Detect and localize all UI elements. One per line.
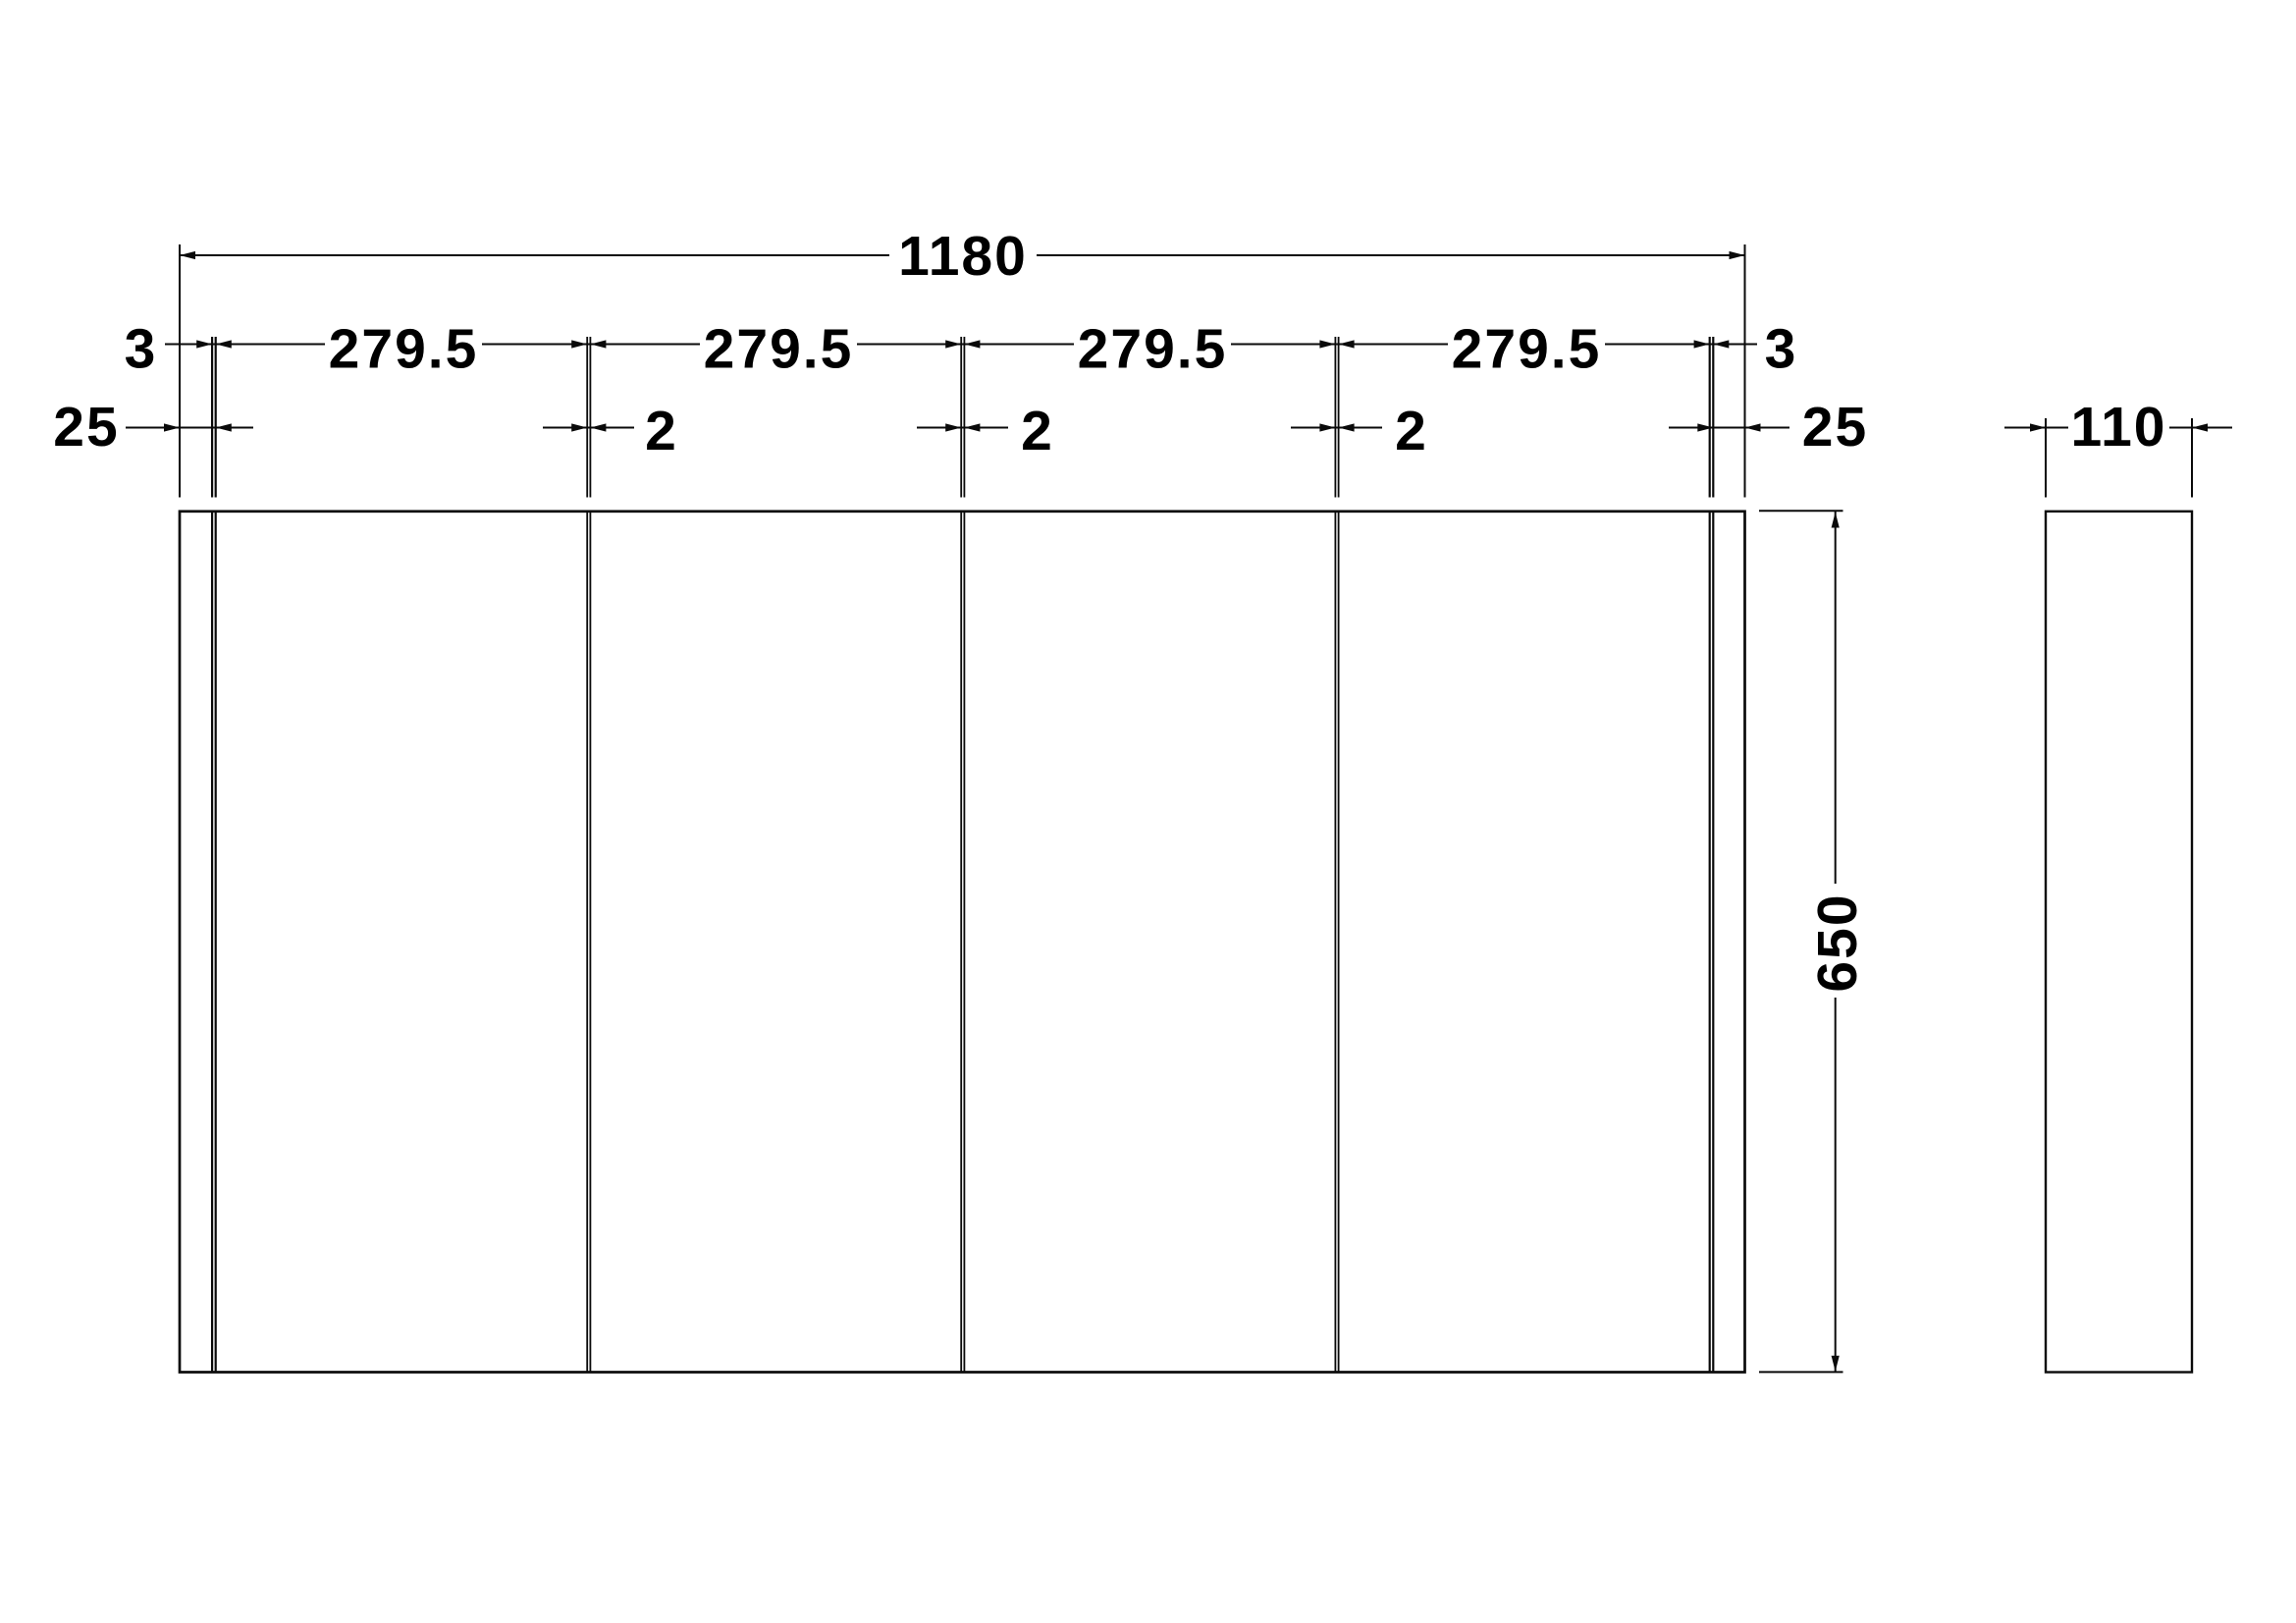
svg-text:25: 25 — [1802, 396, 1868, 459]
svg-text:2: 2 — [645, 400, 678, 462]
svg-text:25: 25 — [53, 396, 119, 459]
svg-text:3: 3 — [1765, 318, 1798, 381]
svg-text:279.5: 279.5 — [1078, 318, 1228, 381]
svg-text:279.5: 279.5 — [1452, 318, 1602, 381]
svg-text:650: 650 — [1806, 893, 1869, 992]
svg-text:3: 3 — [125, 318, 158, 381]
svg-text:2: 2 — [1021, 400, 1054, 462]
svg-text:279.5: 279.5 — [329, 318, 479, 381]
svg-text:279.5: 279.5 — [704, 318, 854, 381]
svg-text:2: 2 — [1395, 400, 1428, 462]
svg-text:1180: 1180 — [898, 225, 1028, 288]
svg-text:110: 110 — [2071, 396, 2167, 459]
